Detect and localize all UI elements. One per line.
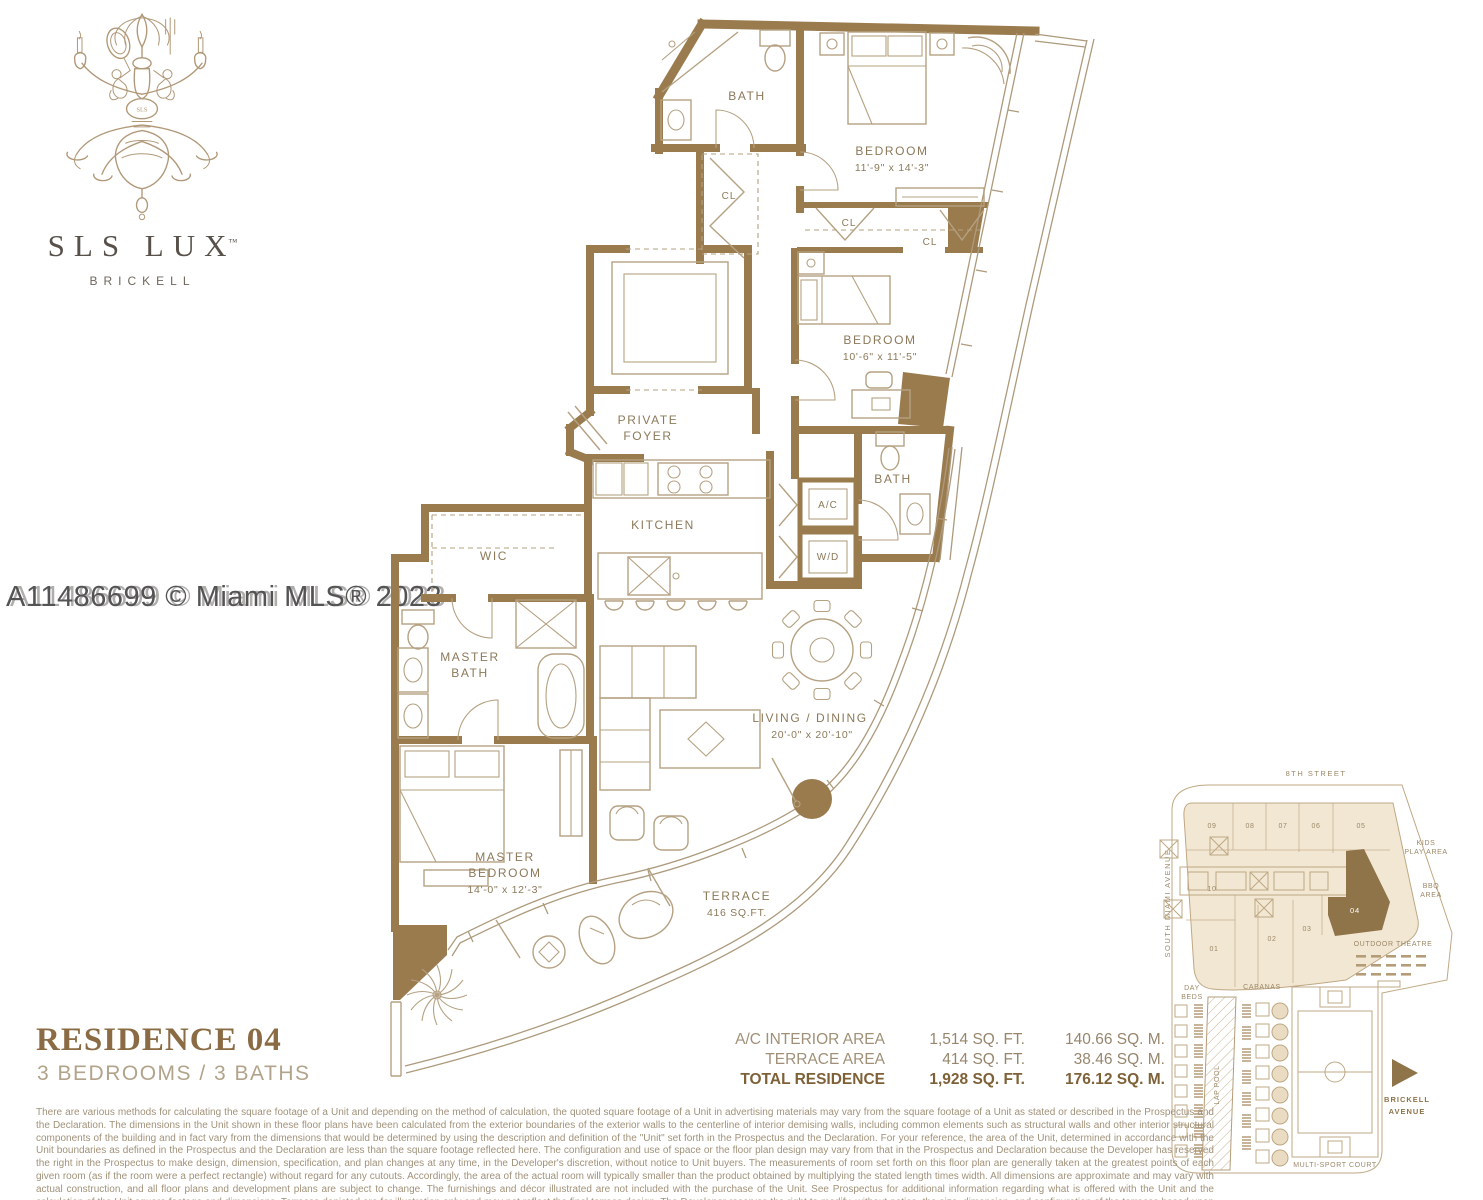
unit-label-07: 07	[1279, 823, 1288, 830]
unit-label-06: 06	[1312, 823, 1321, 830]
logo-tm: ™	[229, 237, 238, 247]
area-sqm: 140.66 SQ. M.	[1025, 1030, 1165, 1050]
amenity-kids-1: KIDS	[1417, 840, 1436, 847]
master-bath-fixtures	[398, 600, 584, 738]
area-sqft: 1,928 SQ. FT.	[885, 1070, 1025, 1090]
sls-lux-chandelier-logo-icon: SLS	[42, 6, 242, 226]
room-dims-living: 20'-0" x 20'-10"	[771, 729, 853, 741]
closet-label-cl3: CL	[923, 237, 938, 248]
room-dims-bedroom1: 11'-9" x 14'-3"	[855, 162, 929, 174]
mls-watermark: A11486699 © Miami MLS® 2023	[6, 581, 442, 614]
room-dims-master-bedroom: 14'-0" x 12'-3"	[467, 884, 542, 896]
area-summary-table: A/C INTERIOR AREA 1,514 SQ. FT. 140.66 S…	[720, 1030, 1165, 1090]
room-label-master-bath-1: MASTER	[440, 650, 500, 664]
area-label: A/C INTERIOR AREA	[720, 1030, 885, 1050]
cabanas	[1242, 1003, 1288, 1166]
room-label-bath2: BATH	[874, 472, 912, 486]
unit-label-04: 04	[1350, 906, 1360, 915]
amenity-cabanas: CABANAS	[1243, 984, 1281, 991]
room-label-kitchen: KITCHEN	[631, 518, 695, 532]
floor-plan: BATH BEDROOM 11'-9" x 14'-3" CL CL CL BE…	[385, 10, 1105, 1085]
closet-label-cl2: CL	[842, 218, 857, 229]
room-label-bedroom2: BEDROOM	[843, 333, 916, 347]
room-label-living: LIVING / DINING	[752, 711, 867, 725]
amenity-bbq-1: BBQ	[1423, 883, 1440, 890]
brickell-label-2: AVENUE	[1389, 1107, 1426, 1116]
brickell-avenue: BRICKELL AVENUE	[1384, 1059, 1430, 1116]
room-label-master-bedroom-1: MASTER	[475, 850, 535, 864]
room-area-terrace: 416 SQ.FT.	[707, 907, 767, 919]
table-row: TERRACE AREA 414 SQ. FT. 38.46 SQ. M.	[720, 1050, 1165, 1070]
room-label-bedroom1: BEDROOM	[855, 144, 928, 158]
elevator	[612, 262, 728, 374]
chandelier-drawing: SLS	[67, 14, 217, 219]
room-label-foyer-1: PRIVATE	[618, 413, 679, 427]
street-label-top: 8TH STREET	[1286, 769, 1347, 778]
brickell-arrow-icon	[1392, 1059, 1418, 1087]
unit-label-03: 03	[1303, 926, 1312, 933]
room-label-wic: WIC	[480, 549, 508, 563]
floorplan-sheet: SLS	[0, 0, 1483, 1200]
amenity-daybeds-1: DAY	[1184, 985, 1200, 992]
unit-label-01: 01	[1210, 946, 1219, 953]
multi-sport-court: MULTI-SPORT COURT	[1292, 987, 1378, 1169]
area-sqm: 176.12 SQ. M.	[1025, 1070, 1165, 1090]
dining-set	[773, 601, 872, 700]
bedroom1-furniture	[820, 32, 1010, 206]
unit-label-10: 10	[1208, 886, 1217, 893]
table-row: A/C INTERIOR AREA 1,514 SQ. FT. 140.66 S…	[720, 1030, 1165, 1050]
court-label: MULTI-SPORT COURT	[1293, 1162, 1377, 1169]
room-label-bath1: BATH	[728, 89, 766, 103]
unit-label-05: 05	[1357, 823, 1366, 830]
logo-brand: SLS LUX™	[30, 228, 255, 264]
brickell-label-1: BRICKELL	[1384, 1095, 1430, 1104]
unit-label-02: 02	[1268, 936, 1277, 943]
logo-brand-text: SLS LUX	[48, 228, 236, 263]
room-label-master-bath-2: BATH	[451, 666, 489, 680]
table-row-total: TOTAL RESIDENCE 1,928 SQ. FT. 176.12 SQ.…	[720, 1070, 1165, 1090]
area-sqm: 38.46 SQ. M.	[1025, 1050, 1165, 1070]
area-label: TERRACE AREA	[720, 1050, 885, 1070]
legal-disclaimer: There are various methods for calculatin…	[36, 1107, 1214, 1200]
amenity-kids-2: PLAY AREA	[1404, 849, 1447, 856]
lap-pool-label: LAP POOL	[1214, 1065, 1221, 1104]
closet-label-ac: A/C	[818, 500, 838, 511]
residence-subtitle: 3 BEDROOMS / 3 BATHS	[37, 1062, 311, 1086]
residence-title: RESIDENCE 04	[36, 1022, 282, 1059]
unit-label-08: 08	[1246, 823, 1255, 830]
closet-label-wd: W/D	[817, 552, 839, 563]
room-label-terrace: TERRACE	[703, 889, 772, 903]
bath1-fixtures	[661, 30, 790, 140]
area-label: TOTAL RESIDENCE	[720, 1070, 885, 1090]
room-dims-bedroom2: 10'-6" x 11'-5"	[843, 351, 917, 363]
logo-medallion-text: SLS	[137, 106, 148, 113]
master-bedroom-furniture	[400, 746, 582, 886]
amenity-bbq-2: AREA	[1420, 892, 1441, 899]
room-label-master-bedroom-2: BEDROOM	[468, 866, 541, 880]
kitchen-fixtures	[593, 460, 770, 610]
logo-location: BRICKELL	[30, 274, 255, 288]
terrace-column	[792, 779, 832, 819]
unit-label-09: 09	[1208, 823, 1217, 830]
area-sqft: 414 SQ. FT.	[885, 1050, 1025, 1070]
amenity-outdoor-theatre: OUTDOOR THEATRE	[1354, 941, 1433, 948]
closet-label-cl1: CL	[722, 191, 737, 202]
area-sqft: 1,514 SQ. FT.	[885, 1030, 1025, 1050]
living-room-furniture	[600, 646, 800, 850]
amenity-daybeds-2: BEDS	[1181, 994, 1202, 1001]
room-label-foyer-2: FOYER	[623, 429, 672, 443]
